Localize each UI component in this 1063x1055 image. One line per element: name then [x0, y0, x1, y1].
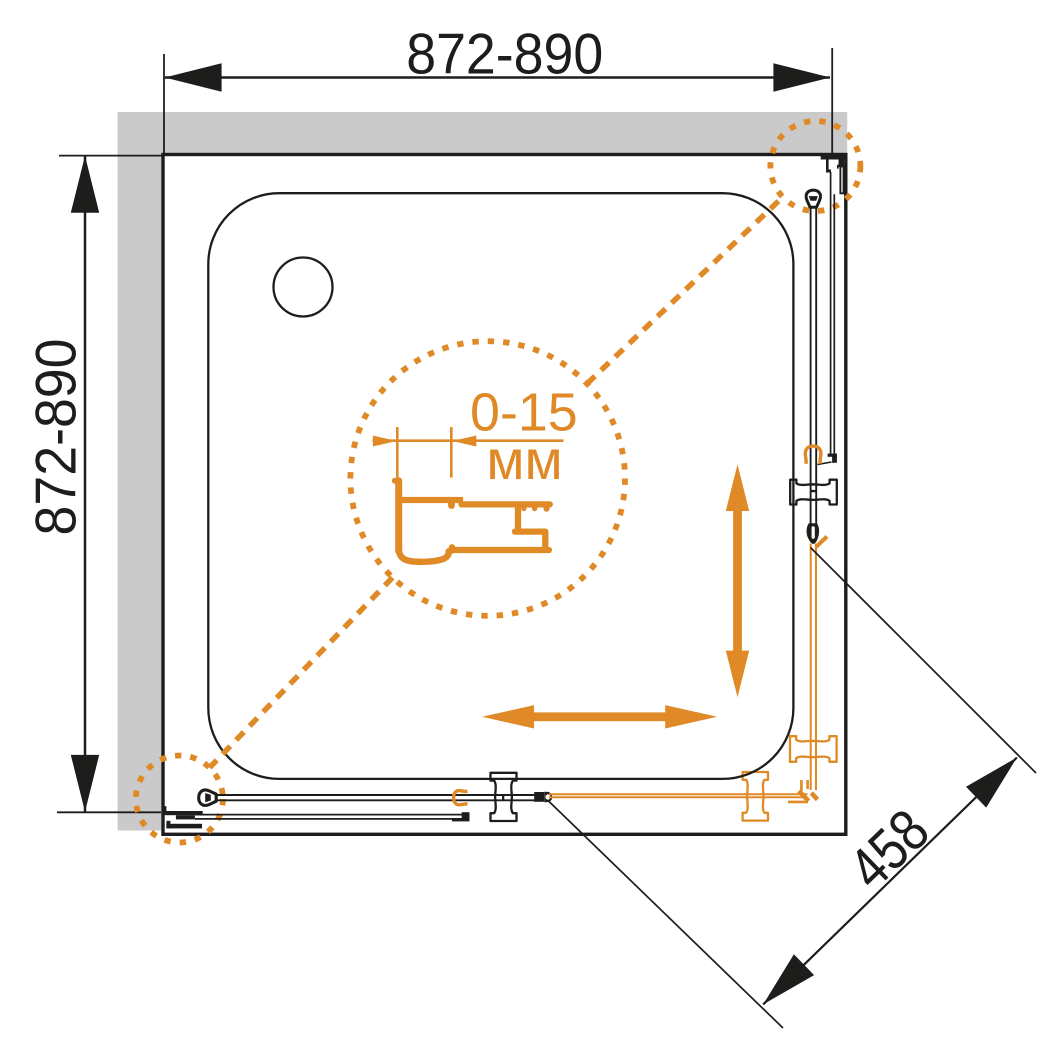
svg-text:мм: мм — [486, 429, 562, 491]
svg-text:872-890: 872-890 — [406, 22, 603, 86]
svg-text:872-890: 872-890 — [24, 339, 88, 536]
